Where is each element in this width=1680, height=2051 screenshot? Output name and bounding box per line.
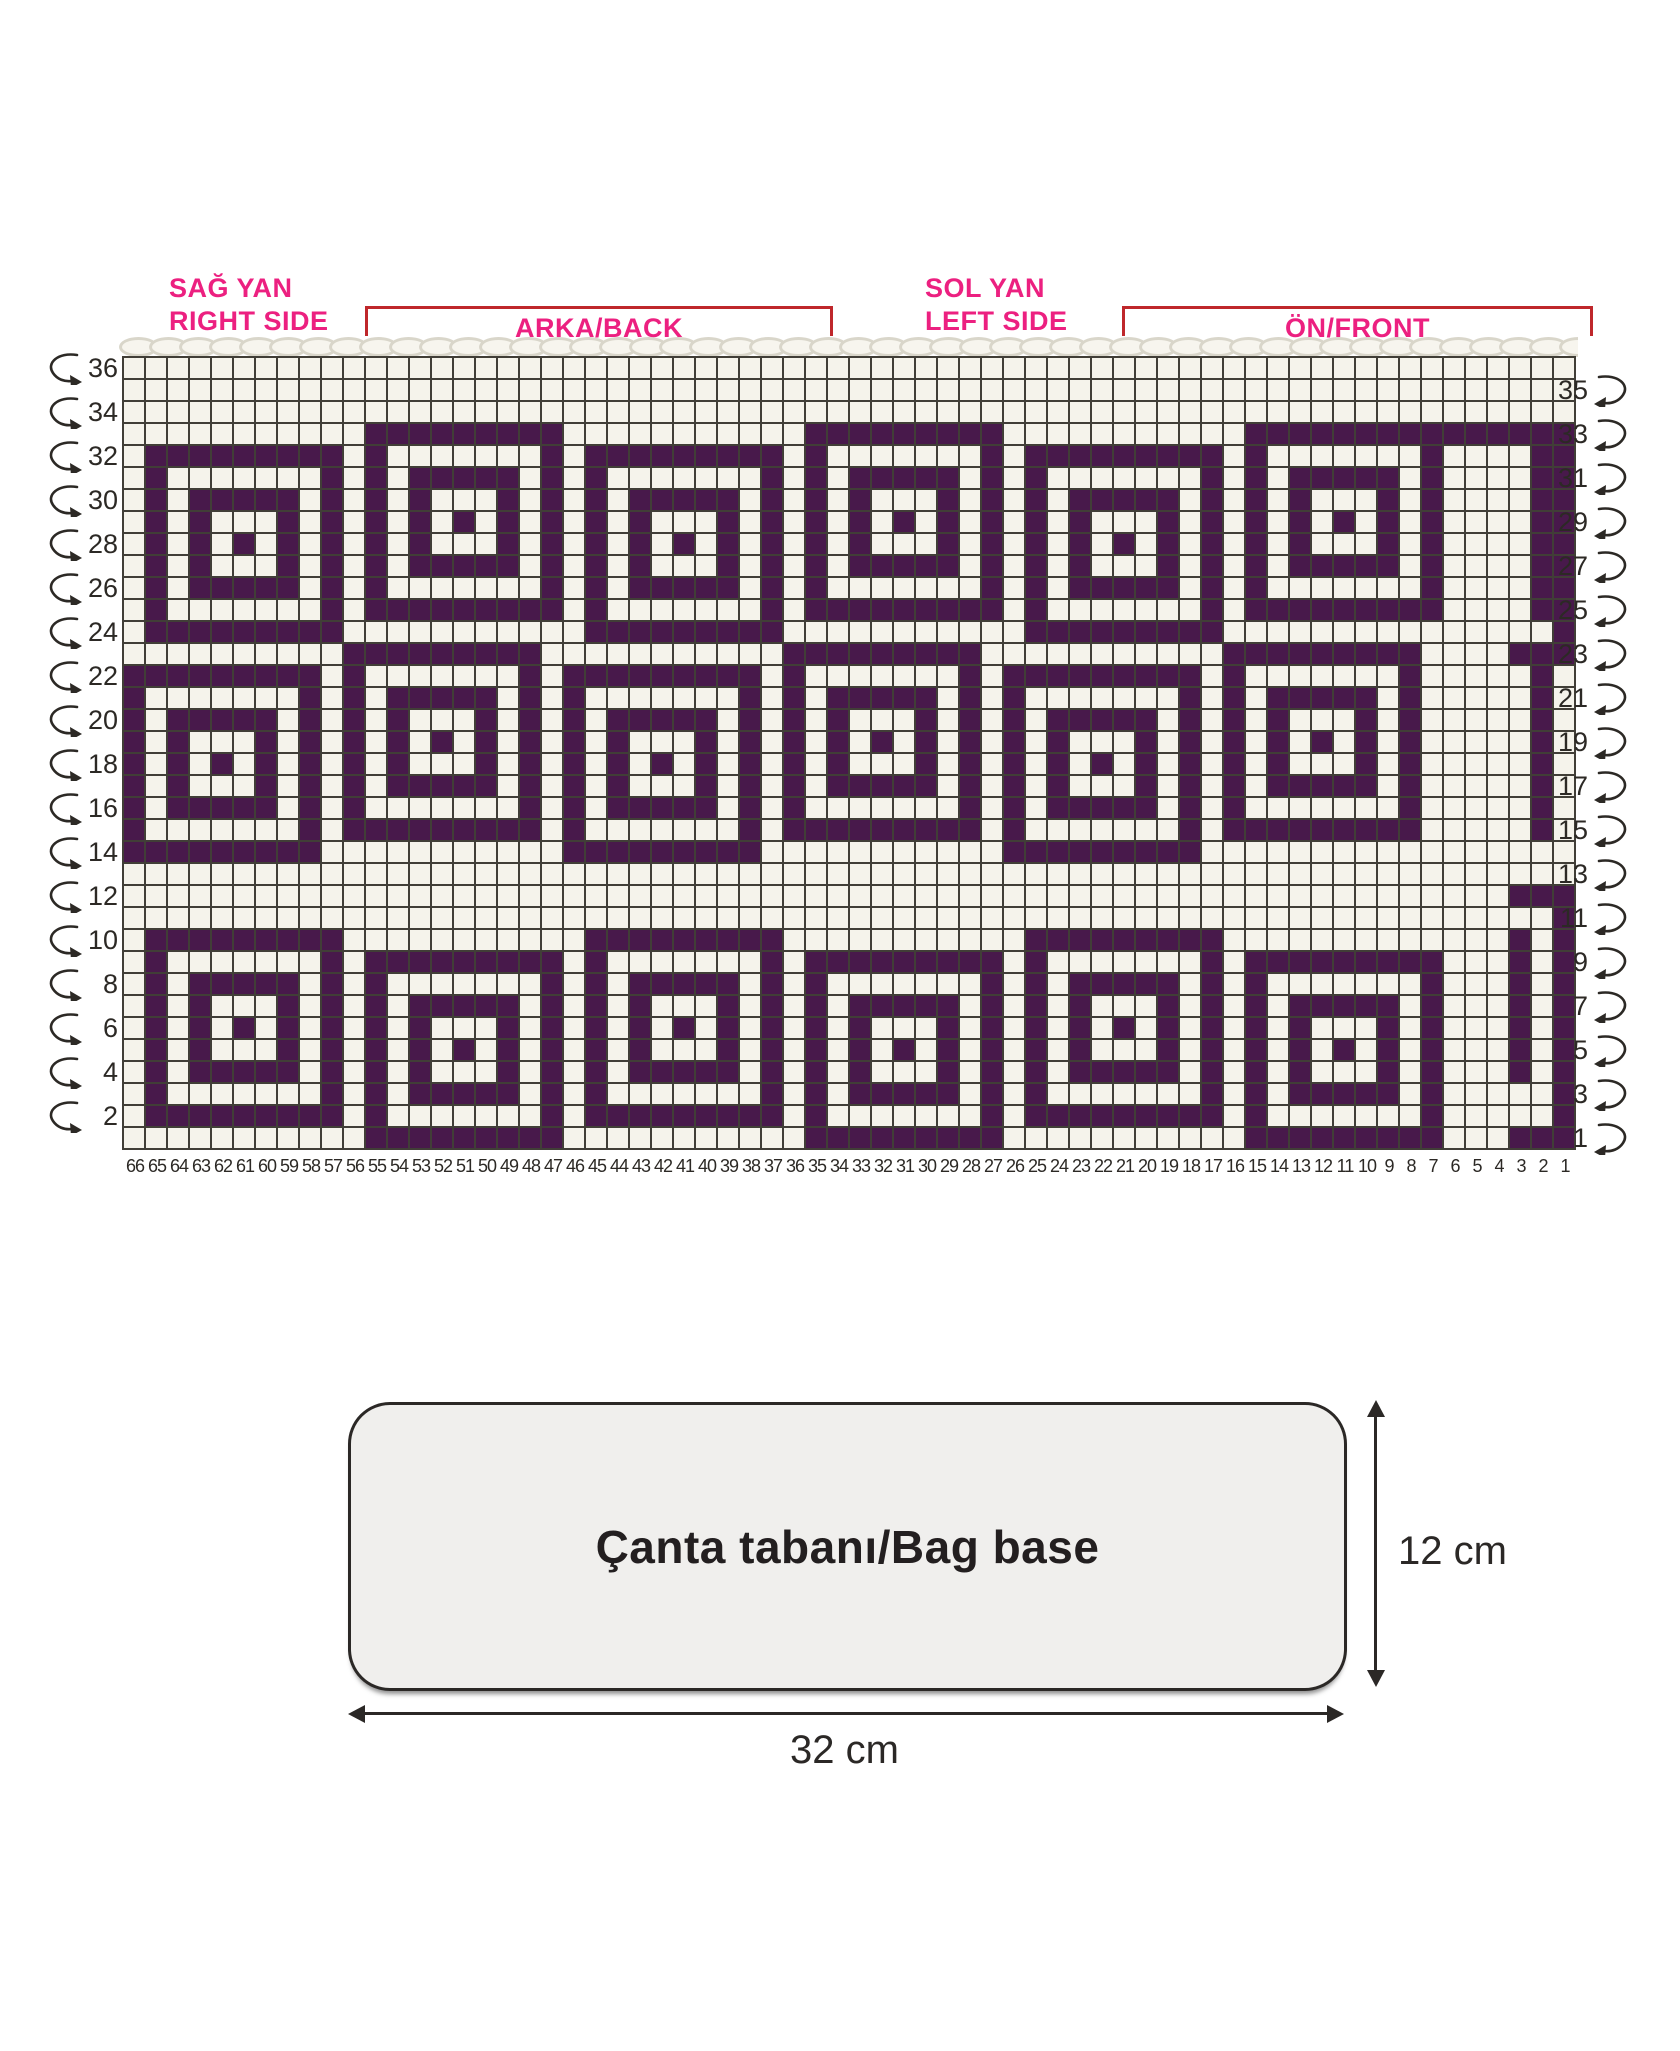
stitch-cell-purple [278, 556, 298, 576]
stitch-cell-cream [718, 688, 738, 708]
stitch-cell-cream [652, 534, 672, 554]
stitch-cell-purple [718, 974, 738, 994]
stitch-column-number: 11 [1334, 1156, 1356, 1177]
stitch-cell-cream [1312, 1018, 1332, 1038]
stitch-cell-purple [916, 468, 936, 488]
stitch-cell-purple [520, 754, 540, 774]
stitch-cell-purple [740, 1106, 760, 1126]
stitch-cell-cream [1466, 512, 1486, 532]
stitch-cell-cream [1026, 820, 1046, 840]
stitch-cell-cream [344, 424, 364, 444]
stitch-cell-purple [1510, 1040, 1530, 1060]
stitch-cell-cream [322, 732, 342, 752]
stitch-cell-purple [652, 754, 672, 774]
stitch-cell-purple [1026, 666, 1046, 686]
stitch-cell-cream [168, 864, 188, 884]
stitch-cell-cream [1334, 908, 1354, 928]
stitch-cell-cream [344, 952, 364, 972]
stitch-cell-purple [740, 754, 760, 774]
stitch-cell-cream [168, 556, 188, 576]
stitch-cell-cream [212, 732, 232, 752]
stitch-cell-purple [498, 1040, 518, 1060]
stitch-cell-cream [608, 1018, 628, 1038]
stitch-cell-purple [806, 952, 826, 972]
stitch-cell-cream [1400, 512, 1420, 532]
stitch-cell-cream [1400, 446, 1420, 466]
stitch-cell-purple [696, 842, 716, 862]
stitch-cell-cream [498, 710, 518, 730]
stitch-cell-purple [1268, 600, 1288, 620]
stitch-cell-purple [762, 996, 782, 1016]
stitch-cell-purple [476, 1084, 496, 1104]
stitch-cell-cream [982, 908, 1002, 928]
stitch-cell-purple [652, 710, 672, 730]
stitch-cell-purple [322, 534, 342, 554]
stitch-cell-cream [432, 1040, 452, 1060]
stitch-cell-purple [234, 1062, 254, 1082]
stitch-cell-purple [1510, 1128, 1530, 1148]
stitch-cell-cream [586, 798, 606, 818]
stitch-cell-purple [718, 622, 738, 642]
row-number: 12 [86, 881, 118, 912]
stitch-cell-purple [542, 1128, 562, 1148]
stitch-cell-purple [762, 1040, 782, 1060]
stitch-cell-cream [1004, 358, 1024, 378]
stitch-column-number: 64 [168, 1156, 190, 1177]
stitch-cell-cream [806, 688, 826, 708]
stitch-cell-cream [1444, 1084, 1464, 1104]
stitch-cell-cream [168, 1040, 188, 1060]
stitch-cell-cream [1356, 358, 1376, 378]
stitch-cell-cream [1092, 996, 1112, 1016]
stitch-cell-cream [190, 688, 210, 708]
row-number: 31 [1546, 463, 1588, 494]
stitch-cell-purple [256, 710, 276, 730]
row-number: 7 [1546, 991, 1588, 1022]
stitch-cell-purple [740, 446, 760, 466]
stitch-cell-cream [432, 974, 452, 994]
stitch-cell-cream [1246, 908, 1266, 928]
stitch-cell-purple [938, 1062, 958, 1082]
stitch-column-number: 43 [630, 1156, 652, 1177]
stitch-column-number: 44 [608, 1156, 630, 1177]
stitch-cell-cream [1070, 468, 1090, 488]
stitch-column-number: 62 [212, 1156, 234, 1177]
stitch-cell-purple [1246, 974, 1266, 994]
stitch-cell-purple [498, 424, 518, 444]
stitch-cell-purple [168, 842, 188, 862]
stitch-cell-cream [300, 578, 320, 598]
stitch-cell-purple [1422, 1128, 1442, 1148]
stitch-cell-cream [872, 534, 892, 554]
stitch-cell-purple [1180, 1106, 1200, 1126]
stitch-cell-cream [1510, 446, 1530, 466]
stitch-cell-purple [146, 666, 166, 686]
stitch-cell-purple [1070, 666, 1090, 686]
stitch-cell-purple [762, 622, 782, 642]
stitch-cell-cream [542, 820, 562, 840]
stitch-cell-purple [872, 776, 892, 796]
stitch-cell-cream [564, 578, 584, 598]
stitch-cell-cream [1070, 1084, 1090, 1104]
stitch-cell-cream [1092, 1084, 1112, 1104]
turn-arrow-icon [44, 747, 84, 781]
stitch-cell-cream [454, 732, 474, 752]
stitch-cell-purple [1268, 688, 1288, 708]
stitch-cell-cream [762, 754, 782, 774]
stitch-cell-cream [1290, 358, 1310, 378]
stitch-cell-cream [322, 754, 342, 774]
stitch-column-number: 59 [278, 1156, 300, 1177]
row-number: 21 [1546, 683, 1588, 714]
stitch-cell-cream [1400, 908, 1420, 928]
stitch-cell-cream [124, 490, 144, 510]
stitch-cell-purple [1224, 754, 1244, 774]
stitch-cell-cream [1290, 798, 1310, 818]
stitch-cell-cream [1004, 886, 1024, 906]
stitch-cell-purple [476, 996, 496, 1016]
stitch-cell-cream [212, 952, 232, 972]
stitch-cell-purple [586, 468, 606, 488]
stitch-cell-cream [322, 1128, 342, 1148]
stitch-cell-cream [828, 468, 848, 488]
stitch-cell-cream [1048, 864, 1068, 884]
stitch-cell-cream [1444, 468, 1464, 488]
stitch-cell-purple [1246, 1040, 1266, 1060]
stitch-cell-purple [960, 776, 980, 796]
stitch-column-number: 18 [1180, 1156, 1202, 1177]
stitch-cell-cream [234, 996, 254, 1016]
stitch-cell-cream [234, 512, 254, 532]
stitch-cell-purple [916, 600, 936, 620]
stitch-cell-purple [1400, 424, 1420, 444]
stitch-cell-purple [1158, 556, 1178, 576]
stitch-cell-cream [212, 534, 232, 554]
turn-arrow-icon [44, 923, 84, 957]
stitch-cell-cream [740, 600, 760, 620]
stitch-cell-cream [674, 556, 694, 576]
stitch-cell-purple [498, 1084, 518, 1104]
stitch-cell-cream [1378, 710, 1398, 730]
stitch-cell-purple [1422, 1062, 1442, 1082]
stitch-cell-purple [1268, 754, 1288, 774]
stitch-cell-purple [388, 688, 408, 708]
stitch-cell-purple [586, 578, 606, 598]
stitch-cell-cream [850, 402, 870, 422]
turn-arrow-icon [1592, 373, 1632, 407]
stitch-cell-purple [520, 666, 540, 686]
stitch-cell-purple [366, 1018, 386, 1038]
stitch-cell-cream [630, 776, 650, 796]
stitch-cell-purple [828, 754, 848, 774]
stitch-cell-cream [410, 578, 430, 598]
stitch-cell-cream [1510, 666, 1530, 686]
stitch-cell-cream [1466, 842, 1486, 862]
stitch-cell-purple [1246, 578, 1266, 598]
stitch-cell-purple [1378, 820, 1398, 840]
stitch-cell-purple [1114, 578, 1134, 598]
stitch-cell-cream [1092, 952, 1112, 972]
stitch-cell-purple [190, 622, 210, 642]
stitch-cell-cream [674, 996, 694, 1016]
stitch-cell-purple [806, 534, 826, 554]
stitch-cell-cream [828, 490, 848, 510]
stitch-cell-cream [1180, 864, 1200, 884]
stitch-cell-cream [1422, 380, 1442, 400]
stitch-cell-purple [1312, 600, 1332, 620]
stitch-cell-cream [256, 468, 276, 488]
stitch-cell-cream [1488, 952, 1508, 972]
stitch-cell-purple [564, 732, 584, 752]
stitch-cell-cream [410, 930, 430, 950]
stitch-cell-cream [608, 556, 628, 576]
stitch-cell-purple [674, 930, 694, 950]
turn-arrow-icon [1592, 1077, 1632, 1111]
stitch-cell-purple [344, 754, 364, 774]
stitch-cell-cream [1312, 886, 1332, 906]
stitch-cell-cream [850, 754, 870, 774]
stitch-cell-cream [344, 490, 364, 510]
stitch-cell-cream [1488, 820, 1508, 840]
stitch-cell-cream [168, 380, 188, 400]
stitch-cell-purple [938, 1128, 958, 1148]
stitch-cell-cream [1356, 842, 1376, 862]
row-number: 3 [1546, 1079, 1588, 1110]
stitch-cell-cream [542, 842, 562, 862]
stitch-cell-cream [542, 930, 562, 950]
stitch-cell-purple [278, 446, 298, 466]
stitch-cell-cream [1004, 424, 1024, 444]
stitch-cell-cream [1488, 930, 1508, 950]
stitch-cell-purple [278, 534, 298, 554]
stitch-cell-cream [564, 402, 584, 422]
stitch-cell-purple [806, 820, 826, 840]
stitch-cell-cream [432, 666, 452, 686]
stitch-cell-cream [740, 1040, 760, 1060]
stitch-cell-cream [1510, 490, 1530, 510]
stitch-column-number: 48 [520, 1156, 542, 1177]
stitch-cell-cream [256, 1040, 276, 1060]
stitch-cell-cream [1026, 358, 1046, 378]
stitch-cell-purple [674, 842, 694, 862]
stitch-cell-purple [1158, 930, 1178, 950]
stitch-cell-purple [1378, 490, 1398, 510]
stitch-cell-cream [1180, 380, 1200, 400]
stitch-cell-cream [1004, 864, 1024, 884]
stitch-cell-cream [564, 556, 584, 576]
stitch-cell-cream [740, 974, 760, 994]
stitch-cell-cream [1356, 578, 1376, 598]
stitch-cell-cream [1488, 864, 1508, 884]
stitch-cell-cream [1224, 1106, 1244, 1126]
stitch-cell-cream [696, 952, 716, 972]
stitch-cell-cream [388, 402, 408, 422]
stitch-cell-purple [938, 1084, 958, 1104]
stitch-cell-purple [608, 732, 628, 752]
stitch-cell-cream [1246, 710, 1266, 730]
stitch-cell-cream [1510, 864, 1530, 884]
stitch-cell-cream [1466, 864, 1486, 884]
stitch-cell-cream [564, 380, 584, 400]
stitch-cell-cream [718, 402, 738, 422]
stitch-cell-cream [740, 864, 760, 884]
stitch-cell-cream [498, 578, 518, 598]
stitch-cell-cream [1158, 864, 1178, 884]
stitch-cell-purple [190, 798, 210, 818]
width-dimension-arrow-icon [360, 1712, 1333, 1715]
stitch-cell-cream [256, 886, 276, 906]
stitch-cell-cream [1312, 1106, 1332, 1126]
stitch-cell-cream [498, 754, 518, 774]
stitch-cell-cream [432, 864, 452, 884]
stitch-cell-cream [1400, 1084, 1420, 1104]
stitch-cell-cream [256, 864, 276, 884]
stitch-column-number: 26 [1004, 1156, 1026, 1177]
stitch-cell-cream [124, 1040, 144, 1060]
stitch-cell-cream [432, 1062, 452, 1082]
stitch-cell-cream [586, 1128, 606, 1148]
stitch-cell-cream [850, 732, 870, 752]
stitch-cell-cream [1444, 952, 1464, 972]
stitch-cell-cream [344, 864, 364, 884]
stitch-cell-cream [1444, 358, 1464, 378]
stitch-cell-purple [1070, 798, 1090, 818]
stitch-cell-purple [1158, 1062, 1178, 1082]
stitch-cell-cream [1466, 820, 1486, 840]
stitch-cell-purple [146, 1018, 166, 1038]
stitch-cell-purple [1268, 952, 1288, 972]
stitch-cell-cream [124, 556, 144, 576]
stitch-cell-cream [784, 952, 804, 972]
stitch-cell-cream [454, 886, 474, 906]
stitch-cell-cream [630, 820, 650, 840]
stitch-cell-purple [542, 996, 562, 1016]
stitch-cell-cream [1224, 974, 1244, 994]
stitch-cell-cream [1466, 490, 1486, 510]
stitch-cell-cream [696, 512, 716, 532]
stitch-cell-cream [1158, 952, 1178, 972]
row-number: 33 [1546, 419, 1588, 450]
stitch-cell-cream [1488, 710, 1508, 730]
stitch-cell-purple [1114, 842, 1134, 862]
stitch-cell-purple [938, 512, 958, 532]
stitch-cell-cream [476, 886, 496, 906]
stitch-cell-cream [366, 380, 386, 400]
stitch-cell-cream [542, 644, 562, 664]
stitch-cell-cream [234, 402, 254, 422]
stitch-cell-cream [366, 930, 386, 950]
stitch-cell-cream [542, 754, 562, 774]
stitch-cell-cream [1400, 886, 1420, 906]
stitch-cell-cream [652, 864, 672, 884]
stitch-cell-cream [1444, 908, 1464, 928]
stitch-cell-purple [1356, 820, 1376, 840]
stitch-cell-cream [916, 490, 936, 510]
stitch-cell-purple [146, 578, 166, 598]
stitch-cell-purple [124, 776, 144, 796]
stitch-cell-cream [740, 358, 760, 378]
stitch-cell-purple [1048, 622, 1068, 642]
stitch-cell-cream [1378, 886, 1398, 906]
stitch-cell-purple [212, 622, 232, 642]
stitch-cell-purple [1092, 490, 1112, 510]
stitch-cell-purple [1026, 490, 1046, 510]
stitch-cell-purple [278, 512, 298, 532]
stitch-cell-purple [806, 1018, 826, 1038]
stitch-cell-cream [1488, 688, 1508, 708]
stitch-cell-purple [234, 842, 254, 862]
stitch-cell-cream [520, 490, 540, 510]
stitch-cell-cream [1334, 402, 1354, 422]
stitch-cell-purple [1048, 798, 1068, 818]
arrow-down-icon [1367, 1670, 1385, 1687]
stitch-cell-purple [630, 556, 650, 576]
stitch-cell-purple [476, 600, 496, 620]
crochet-chart-page: SAĞ YAN RIGHT SIDE ARKA/BACK SOL YAN LEF… [0, 0, 1680, 2051]
stitch-cell-cream [410, 754, 430, 774]
stitch-cell-purple [1422, 974, 1442, 994]
stitch-cell-cream [1114, 820, 1134, 840]
stitch-cell-cream [1488, 1062, 1508, 1082]
stitch-cell-cream [190, 732, 210, 752]
stitch-cell-purple [938, 1040, 958, 1060]
stitch-cell-purple [630, 446, 650, 466]
stitch-cell-cream [938, 732, 958, 752]
stitch-cell-purple [960, 732, 980, 752]
stitch-cell-purple [234, 1018, 254, 1038]
stitch-cell-cream [1400, 578, 1420, 598]
stitch-cell-purple [190, 974, 210, 994]
row-marker-left: 6 [44, 1011, 118, 1045]
stitch-cell-cream [1334, 930, 1354, 950]
stitch-cell-cream [916, 1040, 936, 1060]
stitch-cell-cream [1400, 490, 1420, 510]
stitch-cell-cream [388, 578, 408, 598]
stitch-cell-cream [256, 644, 276, 664]
stitch-cell-purple [1488, 424, 1508, 444]
stitch-cell-cream [542, 688, 562, 708]
stitch-cell-purple [1202, 1084, 1222, 1104]
stitch-cell-cream [234, 952, 254, 972]
stitch-cell-cream [828, 842, 848, 862]
stitch-cell-purple [1246, 1062, 1266, 1082]
stitch-cell-cream [564, 1084, 584, 1104]
stitch-cell-cream [1356, 930, 1376, 950]
stitch-cell-cream [542, 864, 562, 884]
stitch-cell-cream [938, 688, 958, 708]
stitch-cell-cream [718, 710, 738, 730]
stitch-cell-purple [740, 776, 760, 796]
stitch-cell-purple [850, 996, 870, 1016]
stitch-cell-cream [1268, 842, 1288, 862]
stitch-cell-cream [300, 1062, 320, 1082]
stitch-cell-purple [278, 1040, 298, 1060]
stitch-cell-purple [718, 842, 738, 862]
stitch-cell-purple [1136, 446, 1156, 466]
turn-arrow-icon [1592, 945, 1632, 979]
stitch-cell-cream [1378, 380, 1398, 400]
stitch-cell-cream [124, 644, 144, 664]
stitch-cell-cream [1136, 1128, 1156, 1148]
stitch-cell-cream [190, 886, 210, 906]
stitch-cell-cream [1224, 1018, 1244, 1038]
stitch-cell-purple [872, 1084, 892, 1104]
stitch-cell-cream [1268, 798, 1288, 818]
stitch-cell-cream [828, 402, 848, 422]
stitch-cell-cream [674, 424, 694, 444]
stitch-cell-purple [1092, 842, 1112, 862]
stitch-cell-purple [1180, 930, 1200, 950]
